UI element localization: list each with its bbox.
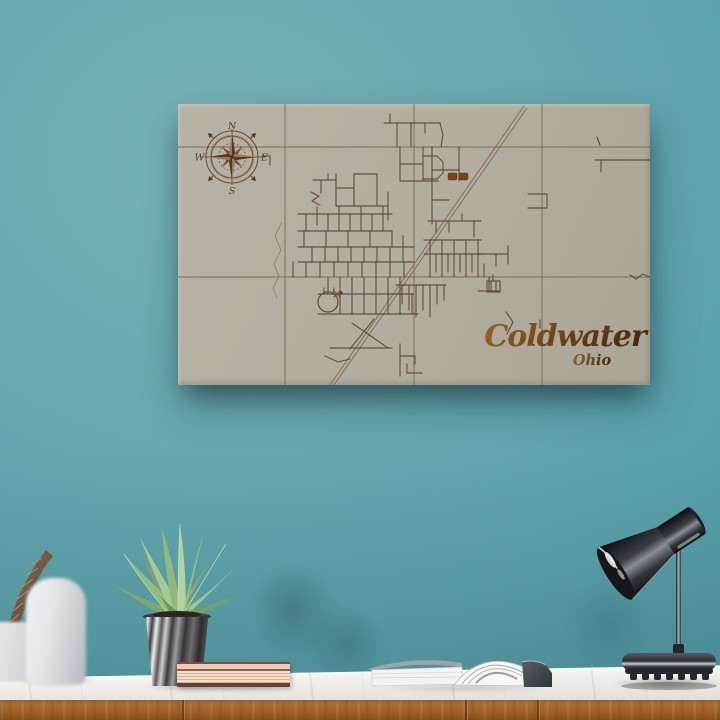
compass-north-label: N [227,121,237,132]
map-title-group: Coldwater Ohio [484,319,648,369]
compass-rose-icon: N E S W [195,121,268,197]
map-markers [339,173,500,295]
compass-south-label: S [229,186,236,197]
creek [273,222,282,298]
plant-soil [153,611,201,618]
lamp-base [621,653,717,690]
pond-inlet [333,288,334,294]
pond-outline [318,292,338,312]
map-engraving: N E S W Coldwater Ohio [178,104,650,385]
compass-star [208,133,256,181]
creek-line [273,222,282,298]
lamp-shade [591,496,717,604]
drawer-seam [182,700,184,720]
product-photo-scene: N E S W Coldwater Ohio [0,0,720,720]
wood-cabinet [0,700,720,720]
street [407,364,422,373]
street [400,356,415,364]
drawer-seam [537,700,539,720]
compass-east-label: E [260,153,268,164]
dot-marker [339,291,342,294]
map-title: Coldwater [484,319,648,354]
building-marker [459,173,468,180]
street [423,156,443,179]
map-subtitle: Ohio [573,352,612,369]
street [597,137,600,145]
white-canister [26,578,86,684]
compass-west-label: W [195,153,206,164]
open-book [366,650,556,692]
street [440,123,443,147]
street [311,192,320,205]
map-canvas: N E S W Coldwater Ohio [178,104,650,385]
street [630,274,650,279]
closed-book [177,662,290,687]
building-marker [448,173,457,180]
drawer-seam [465,700,467,720]
street [528,194,547,208]
table-lamp [578,496,720,692]
